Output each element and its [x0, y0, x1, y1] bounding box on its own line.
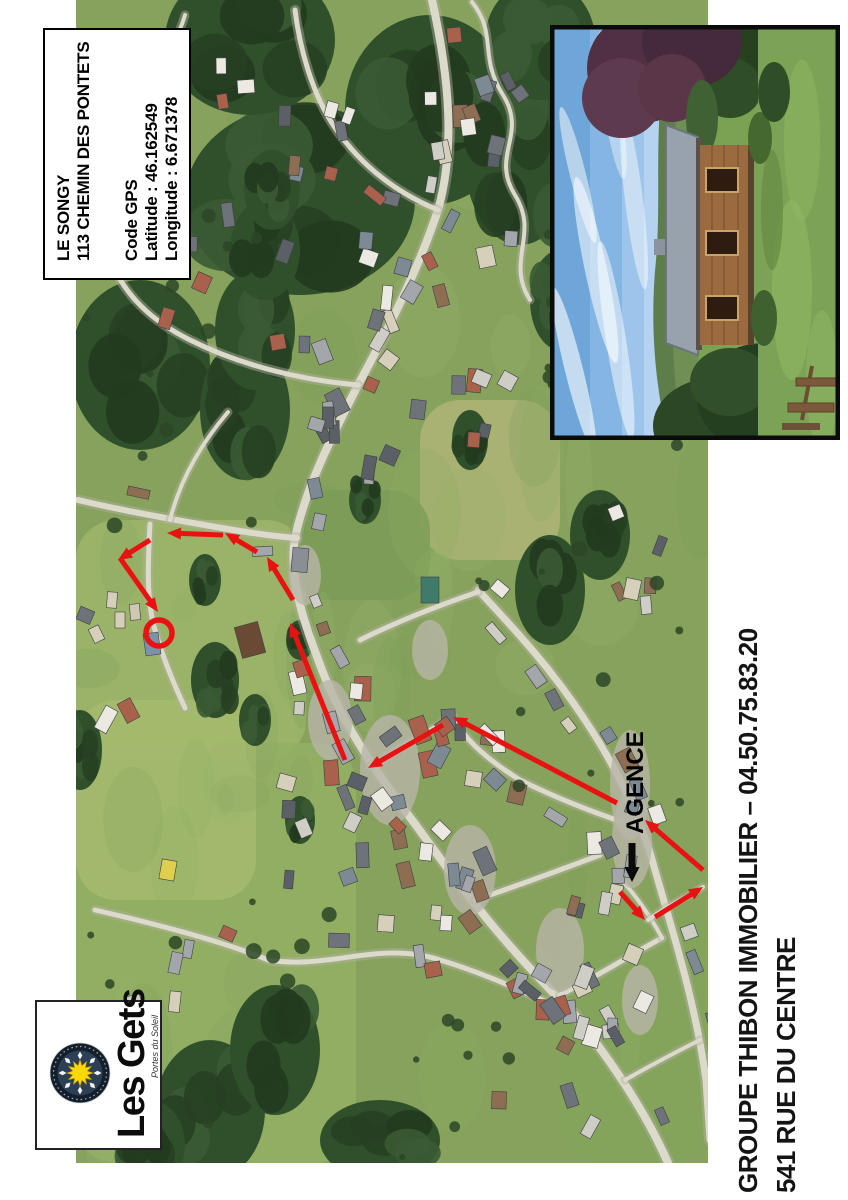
agence-label: AGENCE	[622, 731, 649, 834]
property-name: LE SONGY	[54, 36, 74, 261]
les-gets-logo-box: Les Gets Portes du Soleil	[35, 1000, 162, 1150]
agency-address-line: 541 RUE DU CENTRE	[771, 937, 802, 1193]
gps-info-box: LE SONGY 113 CHEMIN DES PONTETS Code GPS…	[43, 28, 191, 280]
property-photo	[550, 25, 840, 440]
landscape-document: AGENCE	[0, 0, 848, 1200]
scanned-page: AGENCE	[0, 0, 848, 1200]
spacer	[94, 36, 122, 261]
les-gets-tagline: Portes du Soleil	[150, 1015, 160, 1078]
gps-longitude: Longitude : 6.671378	[162, 36, 182, 261]
property-address: 113 CHEMIN DES PONTETS	[74, 36, 94, 261]
gps-latitude: Latitude : 46.162549	[142, 36, 162, 261]
les-gets-wordmark: Les Gets	[111, 989, 154, 1138]
photo-chalet	[654, 125, 754, 355]
agency-contact-line: GROUPE THIBON IMMOBILIER – 04.50.75.83.2…	[733, 628, 764, 1193]
gps-code-label: Code GPS	[122, 36, 142, 261]
les-gets-emblem-icon	[48, 1041, 112, 1105]
